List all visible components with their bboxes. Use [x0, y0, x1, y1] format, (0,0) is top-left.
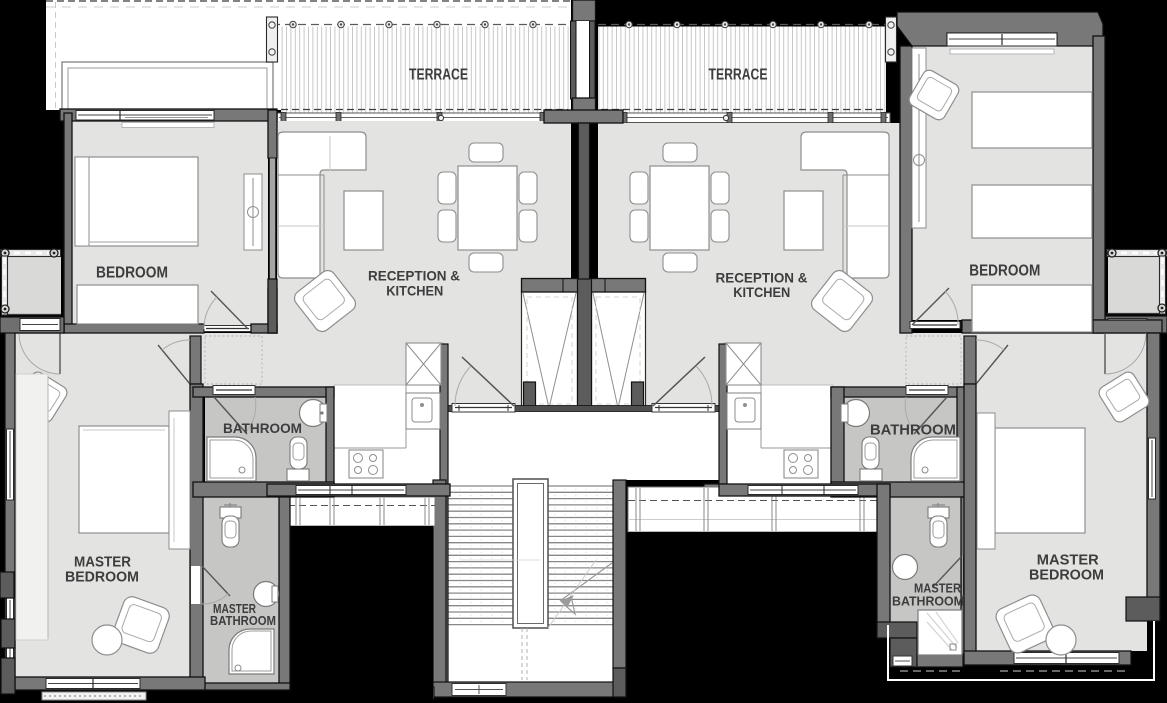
svg-text:BATHROOM: BATHROOM — [210, 614, 276, 628]
svg-text:BATHROOM: BATHROOM — [892, 594, 964, 609]
svg-text:RECEPTION &: RECEPTION & — [368, 268, 460, 284]
svg-text:MASTER: MASTER — [74, 555, 131, 571]
svg-text:KITCHEN: KITCHEN — [733, 284, 790, 300]
svg-text:TERRACE: TERRACE — [709, 66, 768, 83]
svg-text:MASTER: MASTER — [1037, 553, 1100, 569]
svg-text:BEDROOM: BEDROOM — [96, 265, 168, 282]
svg-text:BEDROOM: BEDROOM — [969, 263, 1040, 280]
svg-text:KITCHEN: KITCHEN — [386, 282, 443, 298]
svg-text:RECEPTION &: RECEPTION & — [716, 270, 808, 286]
svg-text:TERRACE: TERRACE — [409, 66, 468, 83]
svg-text:BEDROOM: BEDROOM — [1029, 568, 1104, 584]
svg-text:BATHROOM: BATHROOM — [870, 422, 956, 439]
svg-text:BEDROOM: BEDROOM — [65, 570, 139, 586]
svg-text:BATHROOM: BATHROOM — [223, 420, 302, 436]
